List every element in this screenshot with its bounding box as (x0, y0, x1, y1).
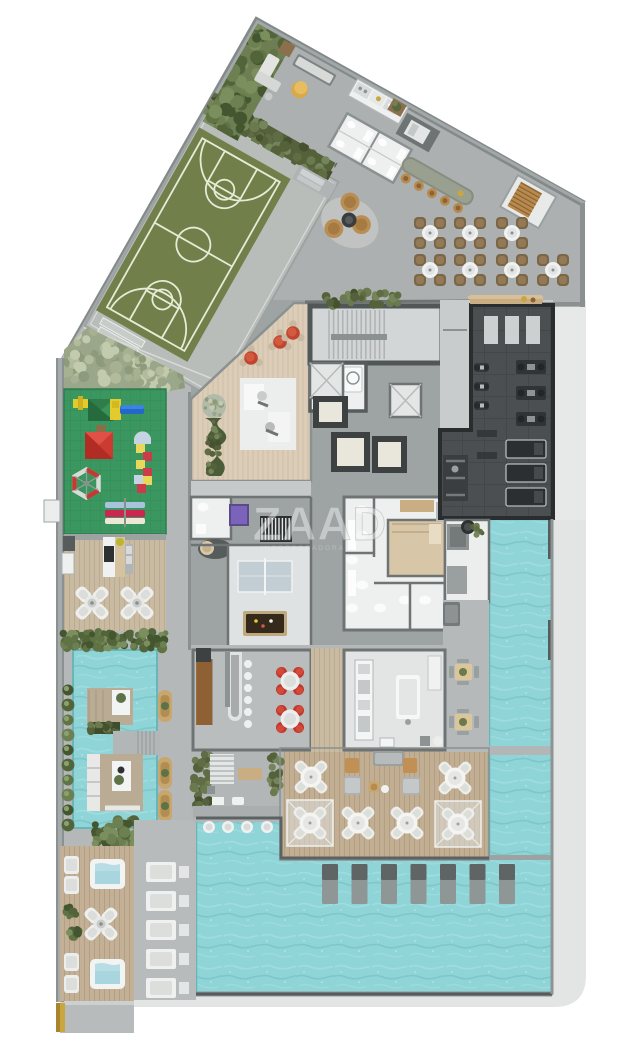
svg-text:ZAAD: ZAAD (253, 497, 388, 550)
svg-text:INCORPORADORA: INCORPORADORA (261, 545, 345, 552)
